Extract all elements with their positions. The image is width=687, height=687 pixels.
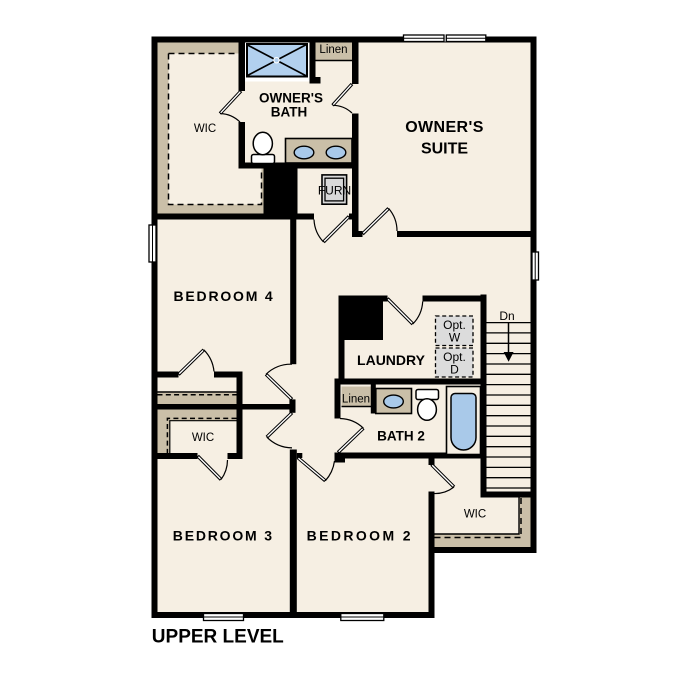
svg-text:W: W xyxy=(449,331,461,345)
svg-text:LAUNDRY: LAUNDRY xyxy=(357,352,426,368)
svg-text:BATH 2: BATH 2 xyxy=(377,429,425,444)
svg-text:BEDROOM 3: BEDROOM 3 xyxy=(173,528,274,544)
svg-text:WIC: WIC xyxy=(192,432,214,444)
svg-text:BEDROOM 2: BEDROOM 2 xyxy=(307,528,413,544)
svg-text:D: D xyxy=(450,363,459,377)
svg-text:WIC: WIC xyxy=(464,509,486,521)
svg-text:OWNER'S: OWNER'S xyxy=(405,119,484,136)
svg-text:BEDROOM 4: BEDROOM 4 xyxy=(174,288,275,304)
svg-text:Linen: Linen xyxy=(342,394,370,406)
svg-text:OWNER'S: OWNER'S xyxy=(259,91,323,106)
svg-text:WIC: WIC xyxy=(194,123,216,135)
svg-text:SUITE: SUITE xyxy=(421,141,468,158)
svg-text:Dn: Dn xyxy=(499,309,514,323)
svg-text:BATH: BATH xyxy=(271,105,308,120)
svg-text:Linen: Linen xyxy=(319,44,347,56)
svg-text:UPPER LEVEL: UPPER LEVEL xyxy=(152,626,284,647)
svg-text:FURN: FURN xyxy=(318,184,351,198)
